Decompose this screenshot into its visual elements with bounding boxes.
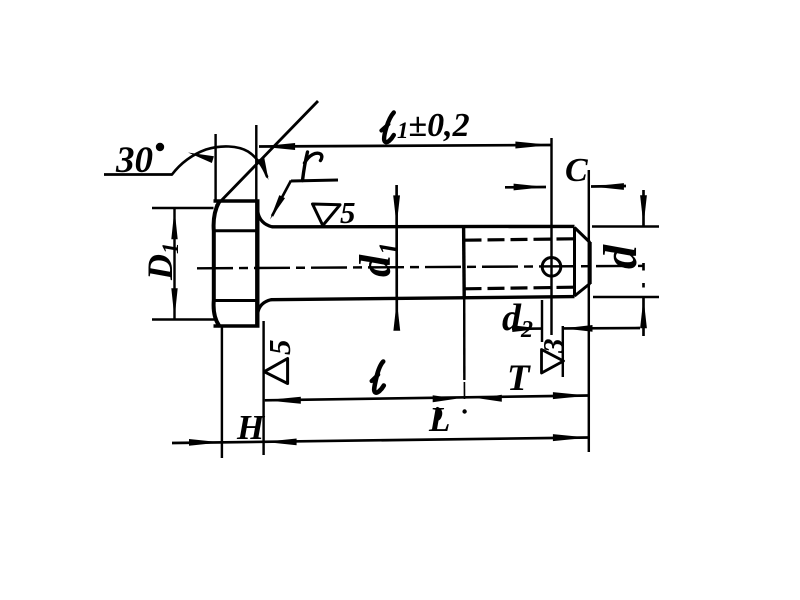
svg-text:d: d [594,244,647,269]
svg-text:L: L [428,400,450,439]
svg-text:H: H [236,408,266,447]
svg-text:T: T [507,358,531,399]
svg-text:5: 5 [262,340,297,356]
svg-text:C: C [565,152,588,189]
svg-text:5: 5 [340,195,356,230]
svg-text:1±0,2: 1±0,2 [397,107,470,144]
